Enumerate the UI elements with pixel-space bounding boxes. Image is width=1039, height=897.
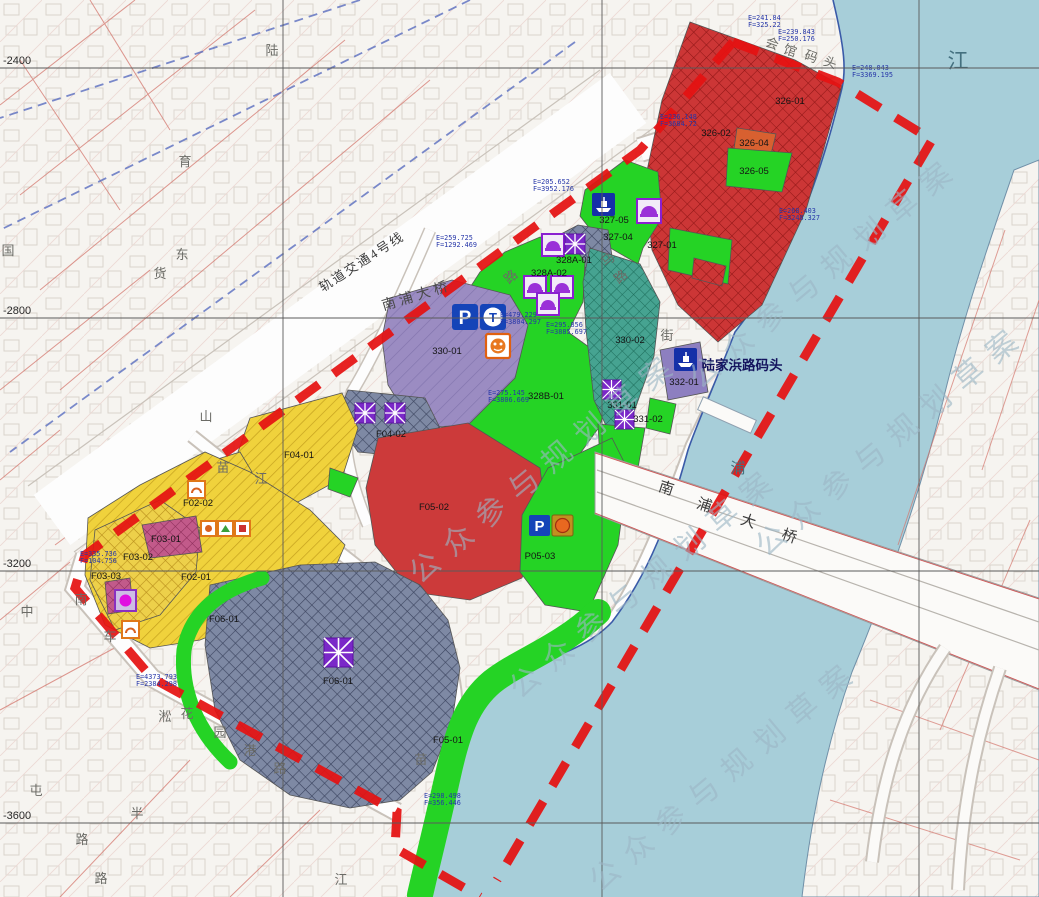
label-F06-01-a: F06-01 (209, 614, 239, 625)
parking-icon: P (452, 304, 478, 330)
label-P05-03: P05-03 (525, 551, 556, 562)
street-char: 山 (199, 409, 212, 424)
label-328A-02: 328A-02 (531, 268, 567, 279)
street-char: 苗 (414, 752, 427, 767)
street-char: 花 (180, 706, 193, 721)
street-char: 中 (20, 604, 33, 619)
label-327-04: 327-04 (603, 232, 633, 243)
label-F04-02: F04-02 (376, 429, 406, 440)
label-327-01: 327-01 (647, 240, 677, 251)
coord-f: F=104.756 (80, 557, 117, 565)
street-char: 半 (130, 806, 143, 821)
street-char: 路 (94, 871, 107, 886)
street-char: 港 (243, 743, 256, 758)
parking-icon-letter-2: P (534, 518, 544, 535)
coord-f: F=3885.697 (546, 328, 587, 336)
coord-f: F=3369.195 (852, 71, 893, 79)
street-char: 车 (103, 629, 116, 644)
street-char: 江 (334, 872, 347, 887)
facility-icon-row (201, 521, 250, 536)
coord-f: F=3248.327 (779, 214, 820, 222)
label-F03-03: F03-03 (91, 571, 121, 582)
coord-f: F=356.446 (424, 799, 461, 807)
parking-icon-letter: P (459, 308, 472, 329)
street-char: 南 (74, 592, 87, 607)
coord-f: F=2384.298 (136, 680, 177, 688)
label-F03-01: F03-01 (151, 534, 181, 545)
street-char: 江 (254, 471, 267, 486)
street-char: 东 (175, 247, 188, 262)
street-char: 货 (153, 266, 166, 281)
label-F03-02: F03-02 (123, 552, 153, 563)
transit-icon-letter: T (489, 310, 497, 325)
coord-f: F=3952.176 (533, 185, 574, 193)
coord-f: F=250.176 (778, 35, 815, 43)
label-330-02: 330-02 (615, 335, 645, 346)
label-330-01: 330-01 (432, 346, 462, 357)
street-char: 育 (178, 154, 191, 169)
grid-label--2400: -2400 (3, 55, 31, 67)
river-char-jiang: 江 (948, 49, 969, 73)
label-F05-02: F05-02 (419, 502, 449, 513)
label-326-05: 326-05 (739, 166, 769, 177)
label-F05-01: F05-01 (433, 735, 463, 746)
label-326-04: 326-04 (739, 138, 769, 149)
coord-f: F=3684.72 (660, 120, 697, 128)
grid-label--2800: -2800 (3, 305, 31, 317)
street-char: 淞 (158, 709, 171, 724)
label-327-05: 327-05 (599, 215, 629, 226)
gold-circle-icon (552, 515, 573, 536)
coord-f: F=3804.297 (500, 318, 541, 326)
label-331-02: 331-02 (633, 414, 663, 425)
orange-facility-icon-3 (122, 621, 139, 638)
street-char: 屯 (29, 783, 42, 798)
street-char: 园 (213, 725, 226, 740)
river-char-pu: 浦 (730, 460, 745, 477)
grid-label--3600: -3600 (3, 810, 31, 822)
planning-map-svg: P T (0, 0, 1039, 897)
grid-label--3200: -3200 (3, 558, 31, 570)
label-328B-01: 328B-01 (528, 391, 564, 402)
label-326-01: 326-01 (775, 96, 805, 107)
magenta-dot-icon (115, 590, 136, 611)
label-F02-01: F02-01 (181, 572, 211, 583)
label-F06-01-b: F06-01 (323, 676, 353, 687)
street-char: 国 (1, 243, 14, 258)
label-F02-02: F02-02 (183, 498, 213, 509)
orange-facility-icon (486, 334, 510, 358)
coord-f: F=3806.669 (488, 396, 529, 404)
coord-f: F=1292.469 (436, 241, 477, 249)
street-char: 街 (660, 328, 673, 343)
label-F04-01: F04-01 (284, 450, 314, 461)
street-char: 陆 (265, 43, 278, 58)
label-326-02: 326-02 (701, 128, 731, 139)
ship-icon (592, 193, 615, 216)
label-328A-01: 328A-01 (556, 255, 592, 266)
street-char: 路 (273, 761, 286, 776)
parking-icon-p05: P (529, 515, 550, 536)
street-char: 路 (75, 832, 88, 847)
planning-map-canvas[interactable]: P T (0, 0, 1039, 897)
street-char: 苗 (216, 460, 229, 475)
orange-facility-icon-2 (188, 481, 205, 498)
coord-f: F=325.22 (748, 21, 781, 29)
